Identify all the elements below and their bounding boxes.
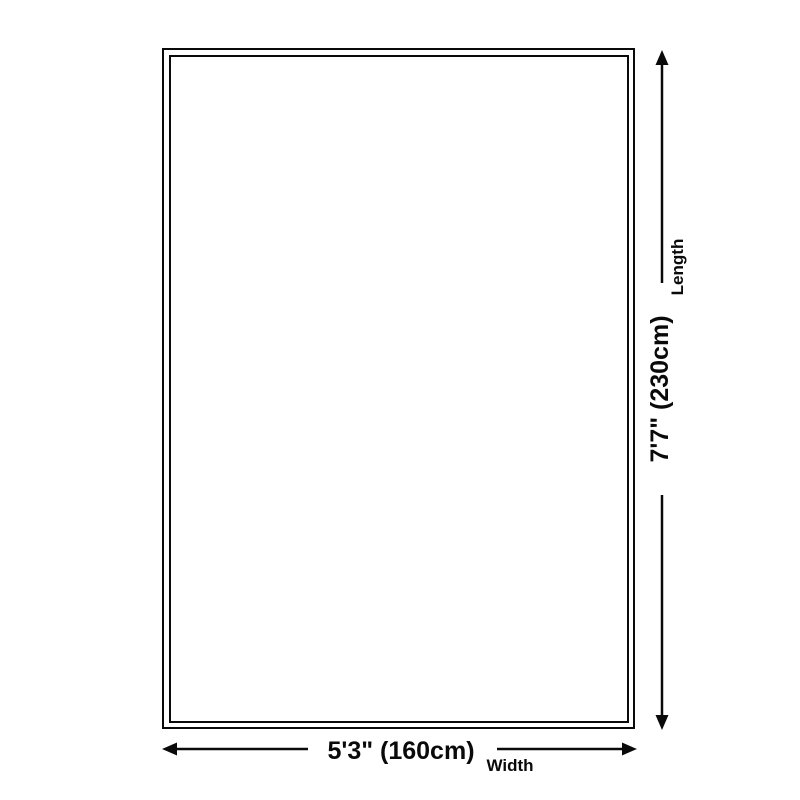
rug-dimension-diagram: 5'3" (160cm) Width Length 7'7" (230cm) (0, 0, 800, 800)
width-label: Width (470, 756, 550, 776)
rug-outline-inner-border (169, 55, 629, 723)
length-value: 7'7" (230cm) (645, 279, 675, 499)
rug-outline (162, 48, 635, 729)
length-arrow-down-icon (654, 495, 670, 730)
width-arrow-left-icon (162, 741, 308, 757)
width-arrow-right-icon (497, 741, 637, 757)
width-value: 5'3" (160cm) (326, 736, 476, 766)
